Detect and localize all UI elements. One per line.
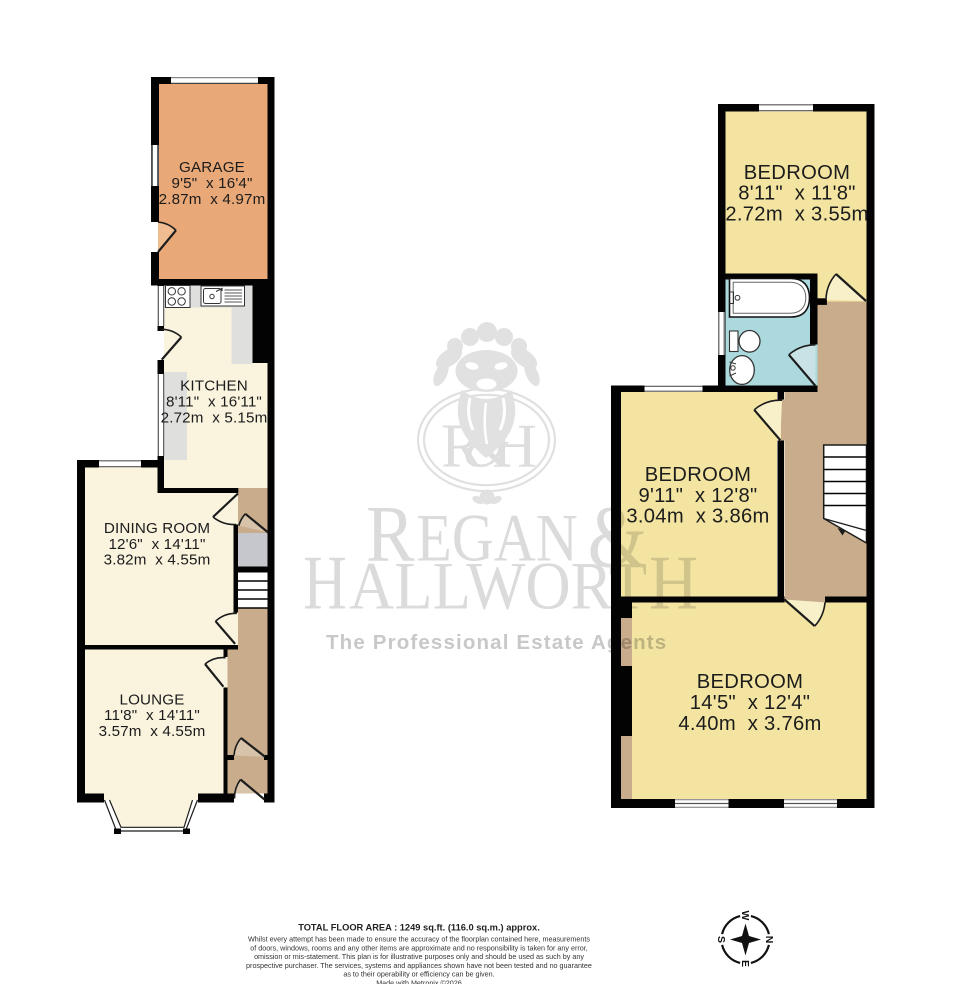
svg-text:9'11" x 12'8": 9'11" x 12'8" <box>638 485 757 507</box>
svg-text:prospective purchaser. The ser: prospective purchaser. The services, sys… <box>246 961 592 970</box>
svg-text:omission or mis-statement. Thi: omission or mis-statement. This plan is … <box>254 952 584 961</box>
svg-text:BEDROOM: BEDROOM <box>697 671 803 693</box>
svg-text:The Professional Estate Agents: The Professional Estate Agents <box>326 631 667 654</box>
svg-text:14'5" x 12'4": 14'5" x 12'4" <box>690 692 811 714</box>
svg-text:8'11" x 11'8": 8'11" x 11'8" <box>738 183 856 205</box>
svg-text:2.87m x 4.97m: 2.87m x 4.97m <box>159 191 266 208</box>
svg-text:9'5" x 16'4": 9'5" x 16'4" <box>171 175 252 192</box>
svg-text:2.72m x 5.15m: 2.72m x 5.15m <box>161 410 268 427</box>
svg-text:LOUNGE: LOUNGE <box>119 692 184 709</box>
svg-text:N: N <box>763 936 775 944</box>
svg-text:3.04m x 3.86m: 3.04m x 3.86m <box>626 506 769 528</box>
svg-text:H: H <box>649 540 698 626</box>
svg-text:H: H <box>303 540 347 626</box>
svg-text:11'8" x 14'11": 11'8" x 14'11" <box>104 707 200 724</box>
svg-text:12'6" x 14'11": 12'6" x 14'11" <box>108 536 205 553</box>
svg-text:GARAGE: GARAGE <box>179 159 245 176</box>
svg-text:S: S <box>715 936 727 943</box>
svg-text:BEDROOM: BEDROOM <box>645 464 751 486</box>
svg-text:2.72m x 3.55m: 2.72m x 3.55m <box>725 203 868 225</box>
svg-text:as to their operability or eff: as to their operability or efficiency ca… <box>343 970 494 979</box>
svg-text:of doors, windows, rooms and a: of doors, windows, rooms and any other i… <box>250 943 588 952</box>
svg-text:DINING ROOM: DINING ROOM <box>104 520 210 537</box>
svg-text:4.40m x 3.76m: 4.40m x 3.76m <box>678 713 821 735</box>
svg-text:TOTAL FLOOR AREA : 1249 sq.ft.: TOTAL FLOOR AREA : 1249 sq.ft. (116.0 sq… <box>298 923 540 933</box>
svg-text:Whilst every attempt has been: Whilst every attempt has been made to en… <box>248 935 590 944</box>
svg-text:KITCHEN: KITCHEN <box>180 378 248 395</box>
svg-text:3.82m x 4.55m: 3.82m x 4.55m <box>104 552 211 569</box>
svg-text:Made with Metropix ©2026: Made with Metropix ©2026 <box>376 979 462 984</box>
svg-text:3.57m x 4.55m: 3.57m x 4.55m <box>99 723 206 740</box>
svg-text:BEDROOM: BEDROOM <box>744 162 850 184</box>
svg-text:ALLWORT: ALLWORT <box>349 548 647 624</box>
svg-text:8'11" x 16'11": 8'11" x 16'11" <box>166 394 262 411</box>
svg-text:E: E <box>739 960 751 967</box>
svg-text:W: W <box>739 911 751 921</box>
